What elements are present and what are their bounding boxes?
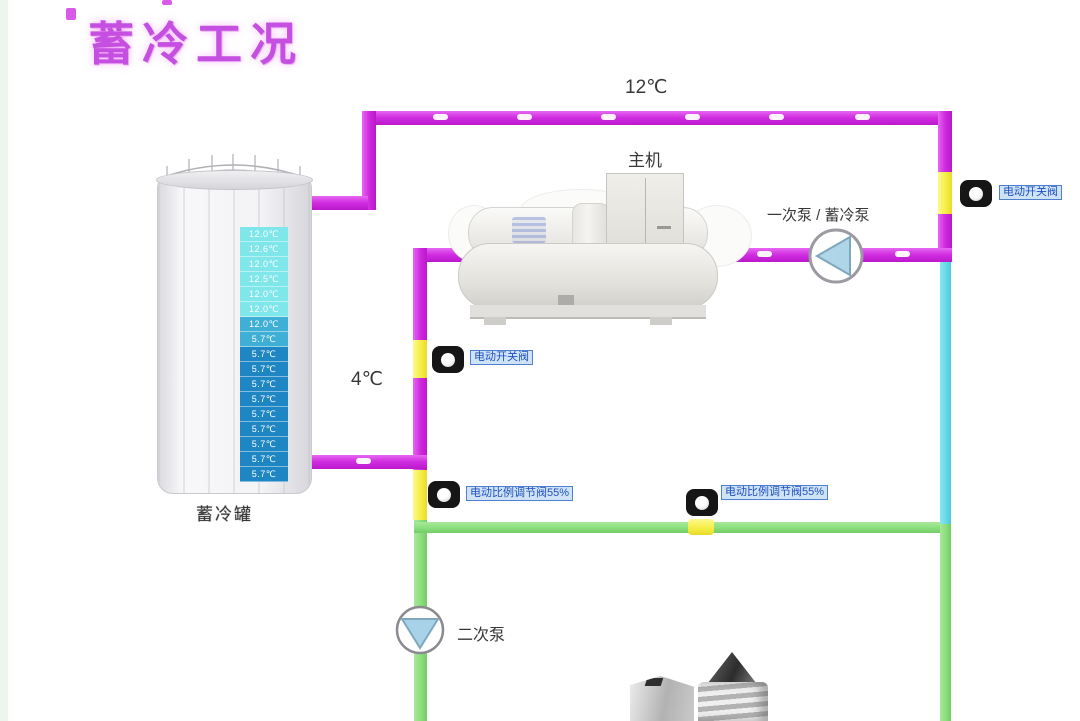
tank-temp-reading: 5.7℃ [240,407,288,422]
diagram-canvas: 蓄冷工况 1 [0,0,1080,721]
valve-chip-middle: 电动开关阀 [470,350,533,365]
valve-chip-left-proportional: 电动比例调节阀55% [466,486,573,501]
tank-temp-reading: 5.7℃ [240,437,288,452]
flow-dash [685,114,700,120]
tank-label: 蓄冷罐 [196,500,253,525]
terminal-unit-ribbed-body [698,682,768,721]
tank-temp-reading: 5.7℃ [240,377,288,392]
tank-level-column: 12.0℃12.6℃12.0℃12.5℃12.0℃12.0℃12.0℃5.7℃5… [240,227,288,473]
artifact-fragment [66,8,76,20]
tank-temp-reading: 5.7℃ [240,332,288,347]
valve-segment-left-lower [413,470,427,520]
valve-chip-right: 电动开关阀 [999,185,1062,200]
tank-temp-reading: 5.7℃ [240,422,288,437]
pipe-right-green-drop [940,524,951,721]
valve-chip-bypass-proportional: 电动比例调节阀55% [721,485,828,500]
pipe-right-drop-upper [938,111,952,174]
tank-temp-reading: 12.0℃ [240,302,288,317]
tank-temp-reading: 5.7℃ [240,467,288,482]
chiller-condenser-barrel [458,243,718,309]
tank-temp-reading: 5.7℃ [240,452,288,467]
tank-temp-reading: 12.0℃ [240,317,288,332]
supply-temp-label: 12℃ [625,76,667,99]
tank-top-rim [156,170,313,190]
pipe-return-horizontal [414,522,950,533]
valve-actuator-icon [960,180,992,207]
flow-dash [356,458,371,464]
primary-pump-label: 一次泵 / 蓄冷泵 [767,204,870,225]
tank-body: 12.0℃12.6℃12.0℃12.5℃12.0℃12.0℃12.0℃5.7℃5… [157,176,312,494]
valve-segment-right [938,172,952,214]
valve-actuator-icon [428,481,460,508]
flow-dash [769,114,784,120]
tank-temp-reading: 12.0℃ [240,227,288,242]
chiller-label: 主机 [628,146,662,171]
tank-temp-reading: 12.6℃ [240,242,288,257]
tank-temp-reading: 12.0℃ [240,257,288,272]
flow-dash [433,114,448,120]
left-edge-tint [0,0,8,721]
valve-segment-middle [413,340,427,378]
page-title: 蓄冷工况 [88,8,304,74]
chiller-foot [650,317,672,325]
chiller-brand-sticker [512,217,546,243]
artifact-fragment [162,0,172,5]
storage-tank: 12.0℃12.6℃12.0℃12.5℃12.0℃12.0℃12.0℃5.7℃5… [157,168,310,492]
tank-temp-reading: 5.7℃ [240,392,288,407]
flow-dash [517,114,532,120]
secondary-pump-label: 二次泵 [457,621,505,645]
secondary-pump-icon [394,604,446,656]
tank-temp-reading: 5.7℃ [240,347,288,362]
valve-actuator-icon [432,346,464,373]
valve-segment-bypass [688,519,714,535]
tank-temp-reading: 12.5℃ [240,272,288,287]
terminal-unit-1 [630,676,694,721]
flow-dash [601,114,616,120]
return-temp-label: 4℃ [351,368,383,391]
flow-dash [895,251,910,257]
flow-dash [855,114,870,120]
tank-temp-reading: 5.7℃ [240,362,288,377]
pipe-left-drop-upper [413,248,427,342]
tank-temp-reading: 12.0℃ [240,287,288,302]
chiller-unit [440,165,760,325]
terminal-unit-2 [698,652,768,721]
terminal-unit-slot [645,678,664,686]
primary-pump-icon [806,226,866,286]
pipe-right-cold-drop [940,262,951,526]
chiller-foot [484,317,506,325]
valve-actuator-icon [686,489,718,516]
